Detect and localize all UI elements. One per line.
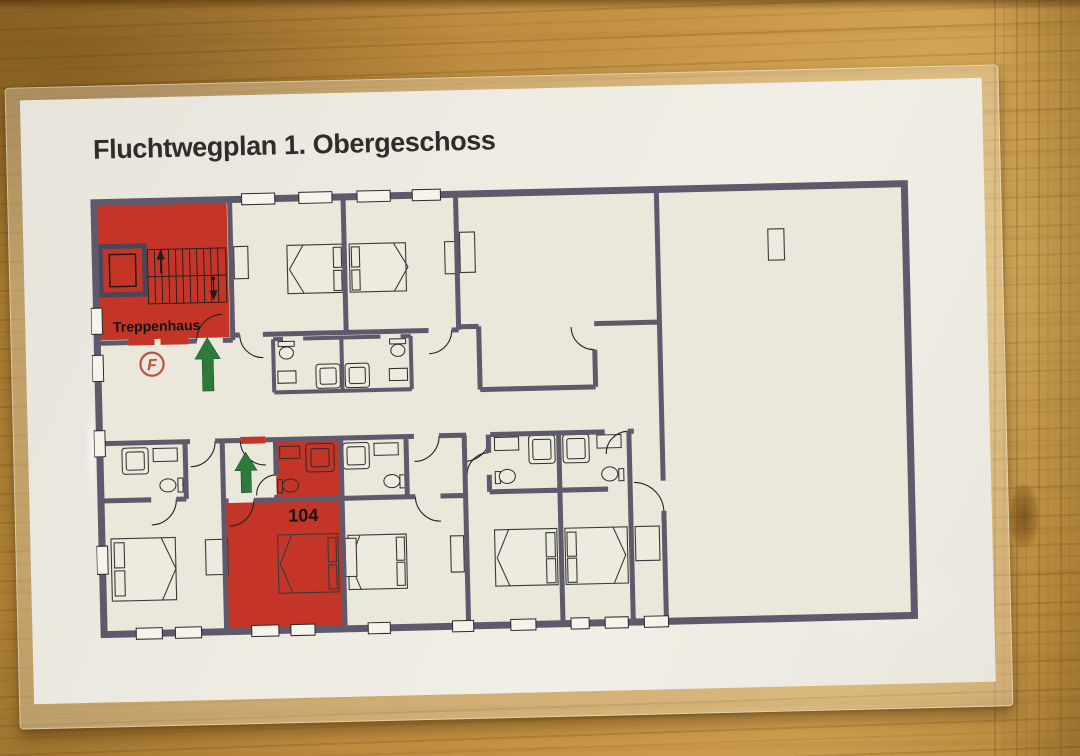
sink-icon (374, 443, 398, 456)
window-marker (644, 616, 668, 628)
window-marker (92, 355, 104, 381)
sink-icon (280, 446, 300, 459)
cistern (277, 480, 282, 493)
toilet-icon (499, 469, 515, 483)
toilet-icon (279, 347, 293, 359)
bed-icon (495, 528, 559, 586)
door-sill-red (160, 337, 188, 345)
wardrobe-icon (234, 246, 249, 278)
window-marker (452, 620, 473, 632)
shower-inner (320, 368, 336, 384)
cistern (390, 339, 406, 344)
door-sill-red (240, 436, 265, 444)
sink-icon (278, 371, 296, 383)
window-marker (368, 622, 390, 634)
escape-plan-card: Fluchtwegplan 1. Obergeschoss (20, 78, 996, 704)
fire-symbol-letter: F (147, 356, 158, 374)
sink-icon (597, 434, 621, 448)
door-sill-red (128, 338, 154, 346)
window-marker (175, 627, 201, 639)
column (768, 229, 785, 261)
toilet-icon (391, 344, 405, 356)
bed-icon (111, 537, 177, 601)
floor-plan: F Treppenhaus 104 (88, 173, 943, 645)
table-edge-shadow (0, 0, 1080, 10)
room-104-label: 104 (288, 505, 319, 526)
window-marker (299, 192, 332, 204)
bed-icon (287, 244, 344, 294)
cistern (400, 475, 405, 488)
wardrobe-icon (345, 538, 357, 576)
bed-icon (278, 534, 340, 594)
window-marker (412, 189, 440, 201)
window-marker (511, 619, 536, 631)
shower-inner (347, 447, 366, 466)
window-marker (241, 193, 274, 205)
bed-icon (565, 527, 629, 585)
wardrobe-icon (450, 536, 464, 572)
toilet-icon (282, 479, 298, 492)
window-marker (94, 431, 106, 457)
cistern (278, 341, 294, 346)
page-title: Fluchtwegplan 1. Obergeschoss (93, 125, 496, 165)
wardrobe-icon (635, 526, 660, 561)
toilet-icon (384, 474, 400, 487)
shower-inner (311, 448, 330, 467)
sink-icon (494, 437, 518, 451)
shower-inner (533, 439, 552, 460)
sink-icon (389, 368, 407, 380)
window-marker (357, 190, 390, 202)
toilet-icon (160, 479, 176, 492)
wardrobe-icon (459, 232, 475, 273)
shower-inner (567, 438, 586, 459)
bed-icon (349, 243, 408, 293)
laminate-pouch: Fluchtwegplan 1. Obergeschoss (5, 64, 1014, 729)
sink-icon (153, 448, 177, 462)
toilet-icon (602, 467, 618, 481)
shower-inner (349, 367, 365, 383)
window-marker (136, 628, 162, 640)
window-marker (605, 617, 628, 629)
window-marker (291, 624, 315, 636)
stairwell-label: Treppenhaus (113, 317, 201, 335)
window-marker (252, 625, 279, 637)
cistern (178, 478, 183, 492)
shower-inner (126, 452, 145, 471)
window-marker (97, 546, 109, 574)
wood-table-background: Fluchtwegplan 1. Obergeschoss (0, 0, 1080, 756)
window-marker (91, 308, 103, 334)
window-marker (571, 618, 589, 629)
cistern (619, 469, 624, 481)
